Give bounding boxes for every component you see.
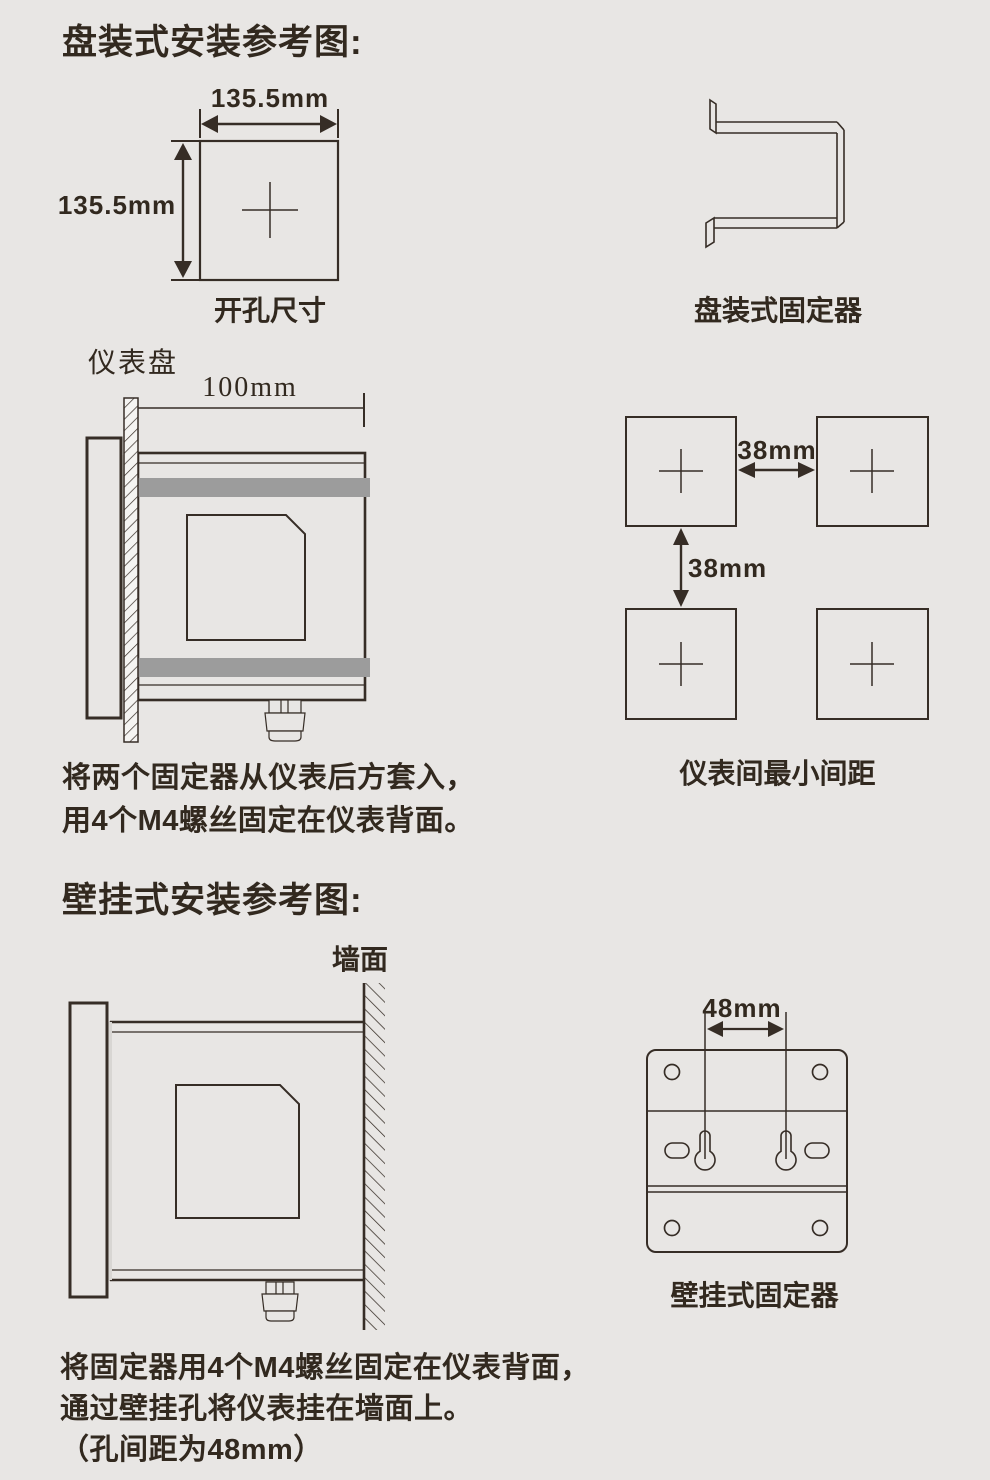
arrowhead-right-icon [768, 1021, 784, 1037]
screw-hole [813, 1221, 828, 1236]
min-spacing-diagram [600, 405, 990, 730]
screw-hole [665, 1065, 680, 1080]
mounting-panel-hatch [124, 398, 138, 742]
panel-mount-note-line2: 用4个M4螺丝固定在仪表背面。 [62, 800, 475, 843]
screw-hole [665, 1221, 680, 1236]
panel-side-view-diagram [58, 390, 388, 750]
wall-mount-note-line2: 通过壁挂孔将仪表挂在墙面上。 [60, 1389, 590, 1430]
arrowhead-right-icon [320, 115, 337, 133]
bracket-edge [837, 122, 844, 130]
panel-bracket-diagram [690, 95, 860, 255]
front-bezel [70, 1003, 107, 1297]
wall-label: 墙面 [332, 938, 452, 978]
wall-mount-note-line3: （孔间距为48mm） [60, 1430, 590, 1471]
panel-mount-note-line1: 将两个固定器从仪表后方套入， [62, 757, 475, 800]
arrowhead-left-icon [201, 115, 218, 133]
manual-page: 盘装式安装参考图: 135.5mm 135.5mm 开孔尺寸 盘装式固定器 [0, 0, 990, 1480]
wall-mount-note: 将固定器用4个M4螺丝固定在仪表背面， 通过壁挂孔将仪表挂在墙面上。 （孔间距为… [60, 1348, 590, 1471]
terminal-cover [187, 515, 305, 640]
arrowhead-left-icon [738, 462, 755, 478]
fixing-band-top [138, 478, 370, 497]
wall-side-view-diagram [55, 978, 400, 1335]
cable-gland [265, 700, 305, 741]
arrowhead-down-icon [673, 590, 689, 607]
panel-mount-title: 盘装式安装参考图: [62, 14, 363, 65]
arrowhead-right-icon [798, 462, 815, 478]
terminal-cover [176, 1085, 299, 1218]
wall-mount-note-line1: 将固定器用4个M4螺丝固定在仪表背面， [60, 1348, 590, 1389]
side-slot [665, 1143, 689, 1158]
wall-fixer-caption: 壁挂式固定器 [627, 1274, 882, 1314]
cutout-dimension-diagram [55, 80, 355, 310]
panel-bracket-caption: 盘装式固定器 [648, 289, 908, 329]
arrowhead-down-icon [174, 261, 192, 278]
arrowhead-up-icon [673, 528, 689, 545]
bracket-top-tab [710, 100, 716, 133]
wall-mount-title: 壁挂式安装参考图: [62, 872, 363, 923]
side-slot [805, 1143, 829, 1158]
screw-hole [813, 1065, 828, 1080]
bracket-bottom-tab [706, 218, 714, 247]
front-bezel [87, 438, 121, 718]
arrowhead-up-icon [174, 143, 192, 160]
panel-mount-note: 将两个固定器从仪表后方套入， 用4个M4螺丝固定在仪表背面。 [62, 757, 475, 843]
bracket-edge [837, 222, 844, 228]
center-cross-icon [659, 449, 894, 686]
cable-gland [262, 1282, 298, 1321]
min-spacing-caption: 仪表间最小间距 [640, 752, 915, 792]
arrowhead-left-icon [707, 1021, 723, 1037]
fixing-band-bottom [138, 658, 370, 677]
wall-hatch [364, 983, 385, 1330]
wall-fixer-diagram [630, 1005, 870, 1260]
